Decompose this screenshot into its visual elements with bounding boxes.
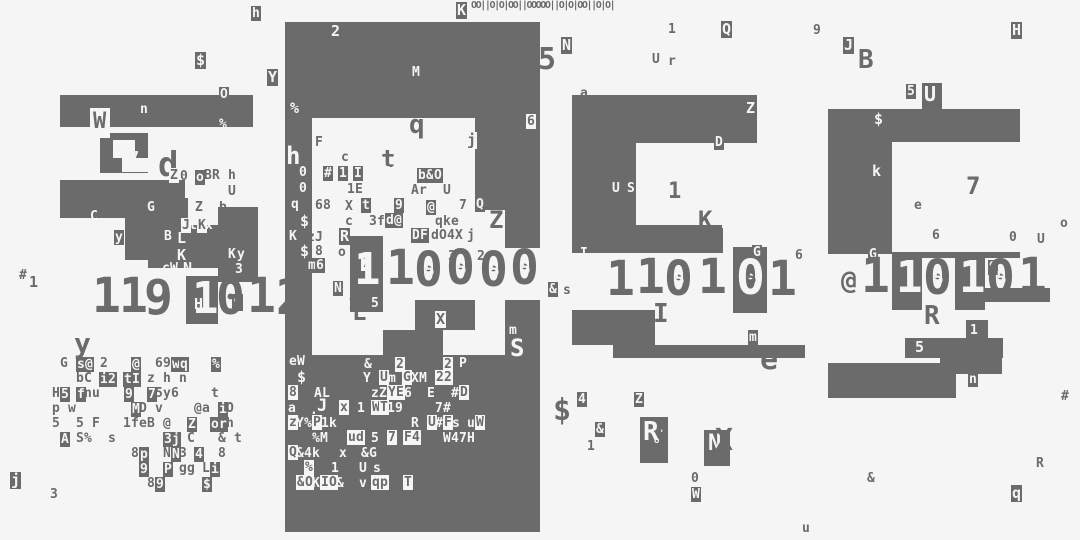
char-glyph: 9 bbox=[395, 402, 403, 415]
char-glyph: 4 bbox=[577, 392, 587, 407]
char-glyph: m bbox=[388, 372, 396, 385]
char-glyph: D bbox=[139, 402, 147, 415]
char-glyph: g bbox=[179, 462, 187, 475]
char-glyph: V bbox=[387, 166, 395, 179]
char-glyph: n bbox=[140, 103, 148, 116]
char-glyph: g bbox=[187, 462, 195, 475]
char-glyph: A bbox=[411, 184, 419, 197]
char-glyph: 5 bbox=[52, 417, 60, 430]
char-glyph: & bbox=[336, 477, 344, 490]
char-glyph: % bbox=[304, 460, 314, 475]
char-glyph: U bbox=[1037, 233, 1045, 246]
char-glyph: W bbox=[92, 110, 107, 134]
char-glyph: 3 bbox=[50, 488, 58, 501]
char-glyph: 0 bbox=[1009, 231, 1017, 244]
char-glyph: Y bbox=[267, 69, 278, 86]
char-glyph: 5 bbox=[456, 260, 467, 278]
char-glyph: & bbox=[218, 432, 226, 445]
char-glyph: # bbox=[435, 417, 443, 430]
char-glyph: q bbox=[179, 357, 189, 372]
char-glyph: 6 bbox=[171, 387, 179, 400]
char-glyph: Y bbox=[296, 417, 304, 430]
char-glyph: 1 bbox=[606, 255, 635, 303]
char-glyph: p bbox=[52, 402, 60, 415]
char-glyph: @ bbox=[84, 357, 94, 372]
char-glyph: N bbox=[183, 261, 192, 276]
char-glyph: 1 bbox=[29, 275, 38, 290]
char-glyph: m bbox=[748, 330, 758, 345]
char-glyph: 1 bbox=[92, 272, 121, 320]
char-glyph: x bbox=[339, 400, 349, 415]
char-glyph: F bbox=[419, 228, 429, 243]
block bbox=[572, 310, 655, 345]
char-glyph: H bbox=[467, 432, 475, 445]
char-glyph: P bbox=[459, 357, 467, 370]
char-glyph: r bbox=[668, 55, 676, 68]
char-glyph: 7 bbox=[130, 150, 139, 165]
char-glyph: U bbox=[359, 462, 367, 475]
char-glyph: 5 bbox=[674, 271, 685, 289]
char-glyph: 5 bbox=[371, 432, 379, 445]
char-glyph: I bbox=[353, 166, 363, 181]
char-glyph: T bbox=[403, 475, 413, 490]
char-glyph: % bbox=[304, 417, 312, 430]
char-glyph: S bbox=[76, 432, 84, 445]
char-glyph: 8 bbox=[131, 447, 139, 460]
char-glyph: 1 bbox=[347, 183, 355, 196]
char-glyph: M bbox=[412, 66, 420, 79]
char-glyph: 5 bbox=[60, 387, 70, 402]
char-glyph: v bbox=[155, 402, 163, 415]
char-glyph: o bbox=[1060, 217, 1068, 230]
char-glyph: R bbox=[924, 303, 940, 329]
char-glyph: C bbox=[84, 372, 92, 385]
char-glyph: J bbox=[843, 37, 854, 54]
char-glyph: 6 bbox=[315, 258, 325, 273]
char-glyph: W bbox=[297, 355, 305, 368]
char-glyph: b bbox=[219, 233, 227, 246]
char-glyph: 5 bbox=[489, 262, 500, 280]
char-glyph: D bbox=[459, 385, 469, 400]
char-glyph: i bbox=[210, 462, 220, 477]
char-glyph: F bbox=[315, 136, 323, 149]
char-glyph: X bbox=[435, 311, 446, 328]
char-glyph: B bbox=[147, 417, 155, 430]
char-glyph: O bbox=[226, 402, 234, 415]
char-glyph: S bbox=[627, 182, 635, 195]
char-glyph: 2 bbox=[443, 370, 453, 385]
char-glyph: X bbox=[715, 426, 733, 456]
char-glyph: q bbox=[1011, 485, 1022, 502]
char-glyph: n bbox=[968, 372, 978, 387]
char-glyph: v bbox=[235, 218, 243, 231]
char-glyph: 3 bbox=[369, 215, 377, 228]
char-glyph: Z bbox=[745, 100, 756, 117]
char-glyph: # bbox=[451, 387, 459, 400]
char-glyph: f bbox=[377, 215, 385, 228]
char-glyph: C bbox=[187, 432, 195, 445]
char-glyph: q bbox=[291, 198, 299, 211]
char-glyph: Q bbox=[721, 21, 732, 38]
char-glyph: 1 bbox=[357, 402, 365, 415]
char-glyph: $ bbox=[299, 213, 310, 230]
char-glyph: % bbox=[219, 118, 227, 131]
char-glyph: U bbox=[443, 184, 451, 197]
char-glyph: J bbox=[317, 398, 327, 415]
char-glyph: 1 bbox=[970, 324, 978, 337]
char-glyph: B bbox=[204, 169, 212, 182]
char-glyph: h bbox=[251, 6, 261, 21]
char-glyph: 9 bbox=[139, 462, 149, 477]
char-glyph: J bbox=[315, 231, 323, 244]
char-glyph: j bbox=[466, 132, 477, 149]
char-glyph: 4 bbox=[304, 447, 312, 460]
char-glyph: h bbox=[163, 372, 171, 385]
char-glyph: b bbox=[76, 372, 84, 385]
char-glyph: W bbox=[475, 415, 485, 430]
block bbox=[572, 95, 757, 143]
block bbox=[828, 142, 892, 254]
char-glyph: $ bbox=[195, 52, 206, 69]
char-glyph: e bbox=[760, 345, 778, 375]
char-glyph: o bbox=[338, 246, 346, 259]
char-glyph: z bbox=[147, 372, 155, 385]
char-glyph: & bbox=[361, 447, 369, 460]
char-glyph: O bbox=[433, 168, 443, 183]
char-glyph: 0 bbox=[299, 182, 307, 195]
char-glyph: e bbox=[139, 417, 147, 430]
char-glyph: 1 bbox=[321, 417, 329, 430]
char-glyph: # bbox=[443, 402, 451, 415]
char-glyph: 1 bbox=[587, 440, 595, 453]
char-glyph: @ bbox=[426, 200, 436, 215]
char-glyph: D bbox=[714, 135, 724, 150]
char-glyph: @ bbox=[393, 213, 403, 228]
char-glyph: ' bbox=[659, 430, 664, 439]
char-glyph: b bbox=[219, 201, 227, 214]
char-glyph: h bbox=[226, 417, 234, 430]
char-glyph: P bbox=[163, 462, 173, 477]
char-glyph: B bbox=[858, 47, 874, 73]
char-glyph: 1 bbox=[768, 255, 797, 303]
char-glyph: p bbox=[139, 447, 149, 462]
char-glyph: H bbox=[52, 387, 60, 400]
char-glyph: N bbox=[163, 447, 171, 460]
char-glyph: 9 bbox=[155, 477, 165, 492]
char-glyph: j bbox=[171, 432, 181, 447]
char-glyph: u bbox=[467, 417, 475, 430]
char-glyph: 1 bbox=[354, 248, 381, 292]
char-glyph: e bbox=[289, 355, 297, 368]
char-glyph: @ bbox=[131, 357, 141, 372]
char-glyph: 1 bbox=[331, 462, 339, 475]
char-glyph: 4 bbox=[451, 432, 459, 445]
char-glyph: 0 bbox=[691, 472, 699, 485]
char-glyph: 4 bbox=[339, 357, 347, 370]
char-glyph: 7 bbox=[459, 432, 467, 445]
char-glyph: 7 bbox=[459, 199, 467, 212]
char-glyph: H bbox=[1011, 22, 1022, 39]
char-glyph: 1 bbox=[698, 253, 727, 301]
char-glyph: k bbox=[312, 447, 320, 460]
char-glyph: 1 bbox=[123, 417, 131, 430]
char-glyph: 1 bbox=[668, 23, 676, 36]
block bbox=[828, 109, 1020, 142]
char-glyph: R bbox=[1036, 457, 1044, 470]
char-glyph: 6 bbox=[526, 114, 536, 129]
char-glyph: G bbox=[146, 200, 156, 215]
char-glyph: x bbox=[205, 219, 213, 232]
char-glyph: G bbox=[60, 357, 68, 370]
char-glyph: q bbox=[435, 215, 443, 228]
char-glyph: 5 bbox=[746, 270, 757, 288]
char-glyph: B bbox=[163, 229, 173, 244]
char-glyph: A bbox=[60, 432, 70, 447]
char-glyph: 5 bbox=[155, 387, 163, 400]
char-glyph: 1 bbox=[636, 253, 665, 301]
char-glyph: Z bbox=[379, 387, 387, 400]
char-glyph: 7 bbox=[435, 402, 443, 415]
char-glyph: L bbox=[352, 300, 366, 324]
char-glyph: 1 bbox=[387, 402, 395, 415]
char-glyph: Z bbox=[634, 392, 644, 407]
char-glyph: % bbox=[312, 432, 320, 445]
char-glyph: Q bbox=[475, 197, 485, 212]
char-glyph: # bbox=[388, 183, 396, 196]
char-glyph: K bbox=[698, 208, 712, 232]
char-glyph: y bbox=[163, 387, 171, 400]
char-glyph: 0 bbox=[180, 170, 188, 183]
char-glyph: 2 bbox=[107, 372, 117, 387]
char-glyph: 9 bbox=[124, 387, 134, 402]
char-glyph: K bbox=[289, 230, 297, 243]
char-glyph: L bbox=[177, 231, 186, 246]
char-glyph: 6 bbox=[404, 387, 412, 400]
char-glyph: & bbox=[363, 357, 373, 372]
char-glyph: q bbox=[409, 112, 425, 138]
char-glyph: 7 bbox=[387, 430, 397, 445]
char-glyph: a bbox=[202, 402, 210, 415]
char-glyph: 5 bbox=[933, 270, 944, 288]
char-glyph: I bbox=[131, 372, 141, 387]
char-glyph: % bbox=[342, 372, 350, 385]
char-glyph: 5 bbox=[915, 340, 924, 355]
char-glyph: @ bbox=[841, 268, 857, 294]
char-glyph: y bbox=[74, 330, 91, 358]
char-glyph: s bbox=[452, 417, 460, 430]
char-glyph: U bbox=[652, 53, 660, 66]
block bbox=[828, 363, 956, 398]
char-glyph: 1 bbox=[896, 256, 923, 300]
char-glyph: O bbox=[219, 87, 229, 102]
char-glyph: j bbox=[10, 472, 21, 489]
char-glyph: M bbox=[419, 372, 427, 385]
char-glyph: $ bbox=[874, 112, 883, 127]
char-glyph: a bbox=[288, 402, 296, 415]
char-glyph: 9 bbox=[394, 198, 404, 213]
char-glyph: x bbox=[339, 447, 347, 460]
char-glyph: Z bbox=[187, 417, 197, 432]
char-glyph: & bbox=[548, 282, 558, 297]
char-glyph: 6 bbox=[315, 199, 323, 212]
char-glyph: c bbox=[341, 151, 349, 164]
char-glyph: 1 bbox=[959, 256, 986, 300]
char-glyph: 8 bbox=[218, 447, 226, 460]
char-glyph: & bbox=[595, 422, 605, 437]
char-glyph: R bbox=[339, 228, 350, 245]
char-glyph: k bbox=[443, 215, 451, 228]
char-glyph: 4 bbox=[411, 430, 421, 445]
char-glyph: d bbox=[347, 357, 355, 370]
char-glyph: t bbox=[361, 198, 371, 213]
char-glyph: # bbox=[323, 166, 333, 181]
char-glyph: 1 bbox=[338, 166, 348, 181]
char-glyph: u bbox=[802, 522, 810, 535]
char-glyph: G bbox=[369, 447, 377, 460]
char-glyph: s bbox=[108, 432, 116, 445]
char-glyph: $ bbox=[297, 370, 306, 385]
char-glyph: 8 bbox=[315, 245, 323, 258]
char-glyph: & bbox=[296, 447, 304, 460]
char-glyph: v bbox=[359, 477, 367, 490]
char-glyph: 5 bbox=[538, 45, 556, 75]
char-glyph: e bbox=[914, 199, 922, 212]
char-glyph: % bbox=[211, 357, 221, 372]
char-glyph: E bbox=[427, 387, 435, 400]
char-glyph: Y bbox=[363, 372, 371, 385]
char-glyph: X bbox=[411, 372, 419, 385]
char-glyph: 5 bbox=[996, 270, 1007, 288]
char-glyph: $ bbox=[553, 396, 571, 426]
char-glyph: # bbox=[19, 269, 27, 282]
char-glyph: % bbox=[84, 432, 92, 445]
char-glyph: C bbox=[90, 210, 98, 223]
char-glyph: h bbox=[228, 169, 236, 182]
char-glyph: 8 bbox=[323, 199, 331, 212]
char-glyph: F bbox=[92, 417, 100, 430]
char-glyph: p bbox=[379, 475, 389, 490]
char-glyph: 2 bbox=[276, 274, 305, 322]
char-glyph: 1 bbox=[192, 277, 219, 321]
char-glyph: E bbox=[355, 183, 363, 196]
char-glyph: 4 bbox=[194, 447, 204, 462]
char-glyph: Z bbox=[169, 168, 179, 183]
char-glyph: R bbox=[212, 169, 220, 182]
char-glyph: d bbox=[355, 430, 365, 445]
char-glyph: d bbox=[431, 229, 439, 242]
char-glyph: L bbox=[202, 462, 210, 475]
char-glyph: 5 bbox=[424, 262, 435, 280]
char-glyph: 5 bbox=[76, 417, 84, 430]
char-glyph: n bbox=[179, 372, 187, 385]
char-glyph: 9 bbox=[813, 24, 821, 37]
char-glyph: 1 bbox=[861, 252, 890, 300]
char-glyph: K bbox=[312, 477, 320, 490]
char-glyph: 8 bbox=[147, 477, 155, 490]
char-glyph: 1 bbox=[668, 181, 681, 203]
char-glyph: y bbox=[236, 247, 246, 262]
char-glyph: r bbox=[419, 184, 427, 197]
char-glyph: m bbox=[334, 372, 342, 385]
char-glyph: 7 bbox=[966, 174, 980, 198]
char-glyph: U bbox=[612, 182, 620, 195]
char-glyph: X bbox=[345, 200, 353, 213]
char-glyph: M bbox=[320, 432, 328, 445]
char-glyph: k bbox=[872, 164, 881, 179]
char-glyph: @ bbox=[194, 402, 202, 415]
char-glyph: 5 bbox=[370, 296, 380, 311]
char-glyph: 0 bbox=[216, 274, 245, 322]
char-glyph: s bbox=[563, 284, 571, 297]
char-glyph: s bbox=[373, 462, 381, 475]
char-glyph: 3 bbox=[179, 447, 187, 460]
char-glyph: 5 bbox=[520, 260, 531, 278]
char-glyph: 0 bbox=[299, 166, 307, 179]
char-glyph: y bbox=[114, 230, 124, 245]
char-glyph: t bbox=[211, 387, 219, 400]
char-glyph: U bbox=[324, 281, 332, 294]
char-glyph: n bbox=[155, 229, 163, 242]
char-glyph: $ bbox=[202, 477, 212, 492]
ascii-art-canvas: OO||O|O|OO||OOOOO||O|O|OO||O|O|hK$YO2MQ9… bbox=[0, 0, 1080, 540]
char-glyph: % bbox=[289, 100, 300, 117]
char-glyph: Z bbox=[195, 201, 203, 214]
char-glyph: R bbox=[411, 417, 419, 430]
char-glyph: 1 bbox=[1018, 252, 1047, 300]
char-glyph: a bbox=[315, 168, 323, 181]
char-glyph: 6 bbox=[155, 357, 163, 370]
char-glyph: k bbox=[329, 417, 337, 430]
char-glyph: U bbox=[924, 84, 936, 104]
char-glyph: K bbox=[456, 2, 467, 19]
char-glyph: n bbox=[84, 387, 92, 400]
char-glyph: W bbox=[443, 432, 451, 445]
char-glyph: N bbox=[561, 37, 572, 54]
char-glyph: a bbox=[580, 87, 588, 100]
char-glyph: 1 bbox=[386, 244, 415, 292]
char-glyph: u bbox=[92, 387, 100, 400]
char-glyph: Q bbox=[627, 325, 635, 338]
char-glyph: 8 bbox=[288, 385, 298, 400]
char-glyph: 8 bbox=[342, 282, 350, 295]
char-glyph: z bbox=[371, 387, 379, 400]
char-glyph: U bbox=[228, 185, 236, 198]
char-glyph: # bbox=[1061, 390, 1069, 403]
char-glyph: @ bbox=[163, 417, 171, 430]
char-glyph: 9 bbox=[163, 357, 171, 370]
char-glyph: 2 bbox=[331, 24, 340, 39]
top-sequence: OO||O|O|OO||OOOOO||O|O|OO||O|O| bbox=[471, 1, 614, 11]
char-glyph: W bbox=[691, 487, 701, 502]
char-glyph: t bbox=[234, 432, 242, 445]
char-glyph: & bbox=[867, 472, 875, 485]
char-glyph: Z bbox=[489, 208, 503, 232]
char-glyph: e bbox=[451, 215, 459, 228]
char-glyph: l bbox=[189, 219, 197, 232]
char-glyph: 9 bbox=[144, 274, 173, 322]
char-glyph: f bbox=[131, 417, 139, 430]
char-glyph: 6 bbox=[932, 229, 940, 242]
char-glyph: S bbox=[510, 336, 524, 360]
char-glyph: w bbox=[68, 402, 76, 415]
char-glyph: I bbox=[580, 247, 588, 260]
char-glyph: 1 bbox=[247, 272, 276, 320]
char-glyph: 2 bbox=[100, 357, 108, 370]
char-glyph: 5 bbox=[906, 84, 916, 99]
